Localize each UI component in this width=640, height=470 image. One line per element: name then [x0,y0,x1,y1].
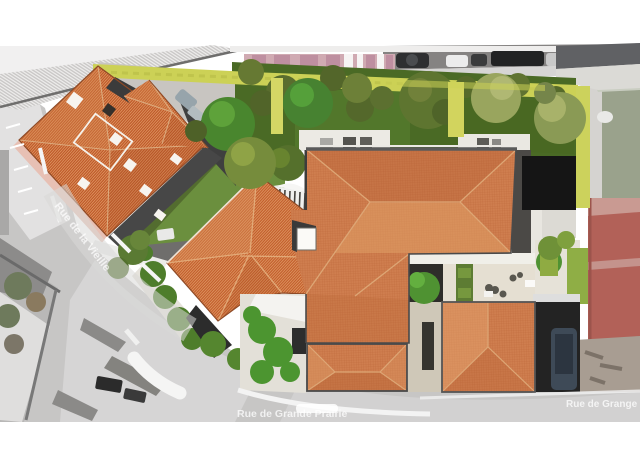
svg-text:Rue de Grange H: Rue de Grange H [566,399,640,410]
